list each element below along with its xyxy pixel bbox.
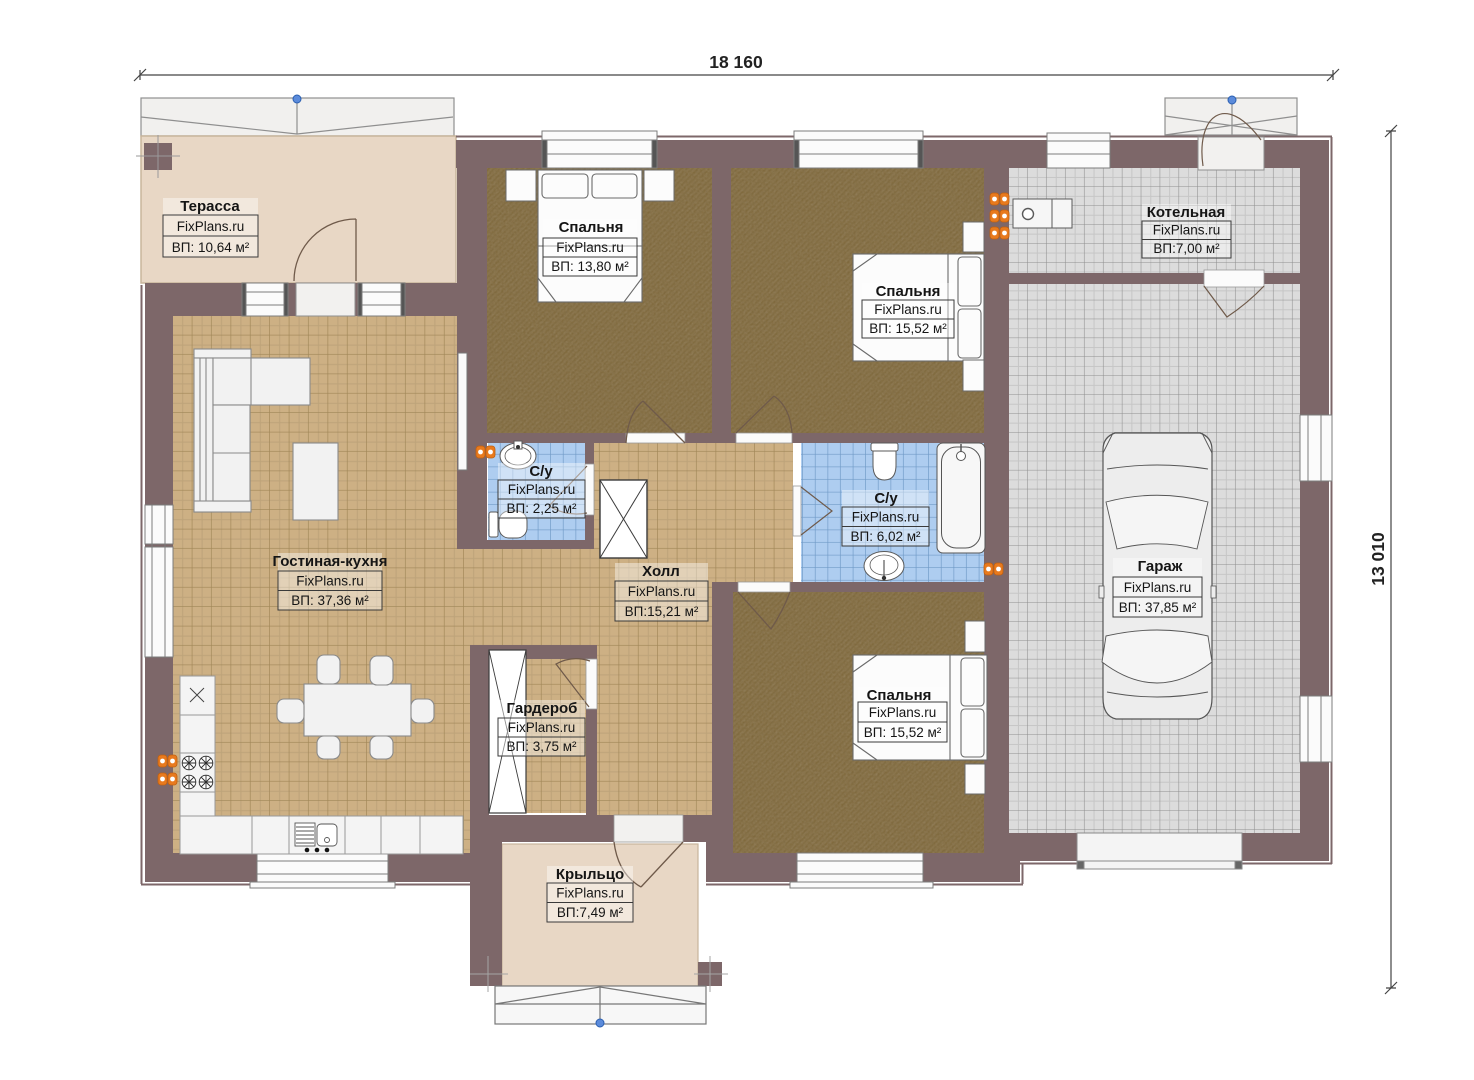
svg-text:FixPlans.ru: FixPlans.ru — [296, 574, 364, 589]
svg-text:ВП: 10,64 м²: ВП: 10,64 м² — [172, 240, 250, 255]
svg-text:ВП: 37,85 м²: ВП: 37,85 м² — [1119, 600, 1197, 615]
svg-text:13 010: 13 010 — [1368, 532, 1388, 586]
svg-text:ВП: 37,36 м²: ВП: 37,36 м² — [291, 593, 369, 608]
svg-text:ВП: 6,02 м²: ВП: 6,02 м² — [850, 529, 921, 544]
svg-text:FixPlans.ru: FixPlans.ru — [177, 219, 245, 234]
svg-text:Гостиная-кухня: Гостиная-кухня — [273, 553, 388, 570]
svg-text:ВП: 3,75 м²: ВП: 3,75 м² — [506, 739, 577, 754]
svg-text:ВП: 13,80 м²: ВП: 13,80 м² — [551, 259, 629, 274]
svg-text:FixPlans.ru: FixPlans.ru — [556, 240, 624, 255]
svg-text:Холл: Холл — [642, 563, 680, 580]
svg-text:FixPlans.ru: FixPlans.ru — [869, 705, 937, 720]
svg-text:Спальня: Спальня — [876, 283, 941, 300]
svg-text:Гараж: Гараж — [1138, 558, 1183, 575]
svg-text:ВП:15,21 м²: ВП:15,21 м² — [625, 604, 699, 619]
svg-text:FixPlans.ru: FixPlans.ru — [508, 720, 576, 735]
svg-text:Котельная: Котельная — [1147, 204, 1226, 221]
svg-text:С/у: С/у — [529, 463, 553, 480]
svg-text:Крыльцо: Крыльцо — [556, 866, 624, 883]
svg-text:FixPlans.ru: FixPlans.ru — [556, 886, 624, 901]
svg-text:FixPlans.ru: FixPlans.ru — [508, 482, 576, 497]
svg-text:FixPlans.ru: FixPlans.ru — [1153, 223, 1221, 238]
svg-text:18 160: 18 160 — [709, 52, 763, 72]
svg-text:Спальня: Спальня — [559, 219, 624, 236]
svg-text:FixPlans.ru: FixPlans.ru — [852, 510, 920, 525]
svg-text:ВП: 2,25 м²: ВП: 2,25 м² — [506, 501, 577, 516]
svg-text:ВП: 15,52 м²: ВП: 15,52 м² — [864, 725, 942, 740]
svg-text:ВП:7,00 м²: ВП:7,00 м² — [1153, 241, 1220, 256]
svg-text:FixPlans.ru: FixPlans.ru — [1124, 580, 1192, 595]
svg-text:FixPlans.ru: FixPlans.ru — [874, 302, 942, 317]
svg-text:ВП:7,49 м²: ВП:7,49 м² — [557, 905, 624, 920]
svg-text:Спальня: Спальня — [867, 687, 932, 704]
svg-text:Гардероб: Гардероб — [507, 700, 578, 717]
svg-text:FixPlans.ru: FixPlans.ru — [628, 584, 696, 599]
svg-text:ВП: 15,52 м²: ВП: 15,52 м² — [869, 321, 947, 336]
svg-text:С/у: С/у — [874, 490, 898, 507]
svg-text:Терасса: Терасса — [180, 198, 240, 215]
